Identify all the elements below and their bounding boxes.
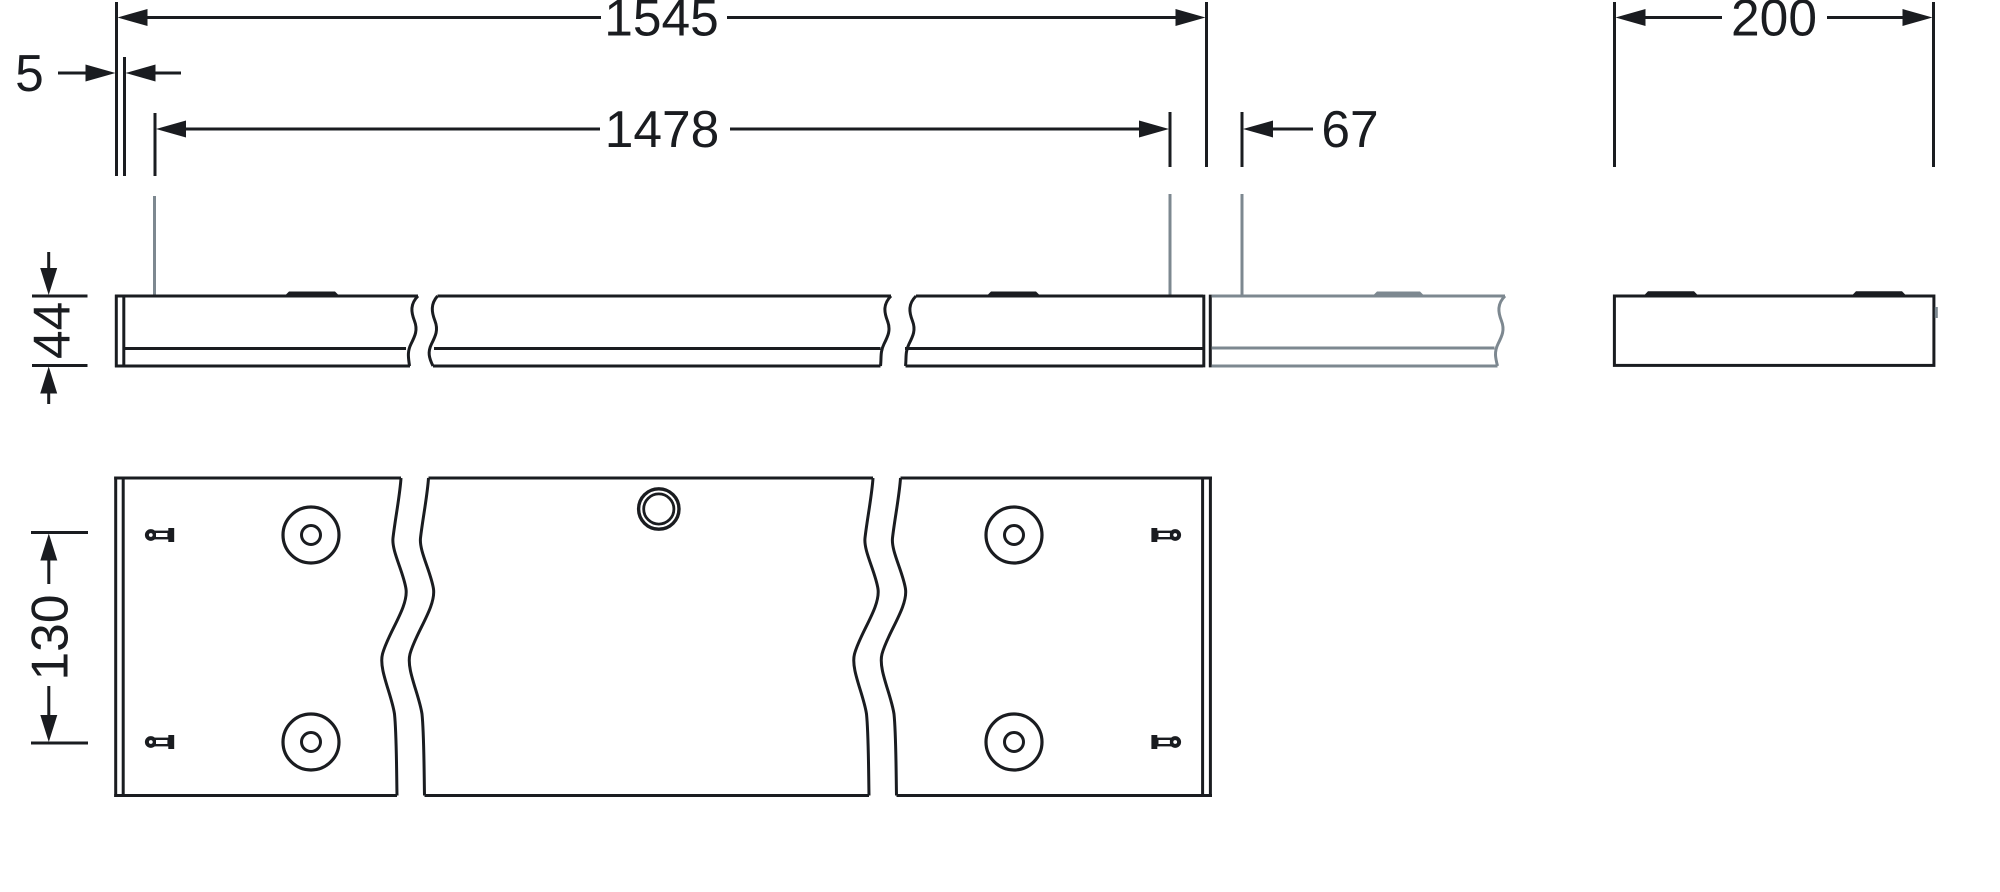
svg-text:67: 67 bbox=[1321, 100, 1378, 158]
svg-text:130: 130 bbox=[21, 595, 79, 681]
svg-text:44: 44 bbox=[23, 302, 81, 359]
svg-text:200: 200 bbox=[1731, 0, 1817, 47]
svg-text:1478: 1478 bbox=[605, 100, 720, 158]
svg-text:5: 5 bbox=[15, 44, 44, 102]
svg-text:1545: 1545 bbox=[604, 0, 719, 47]
